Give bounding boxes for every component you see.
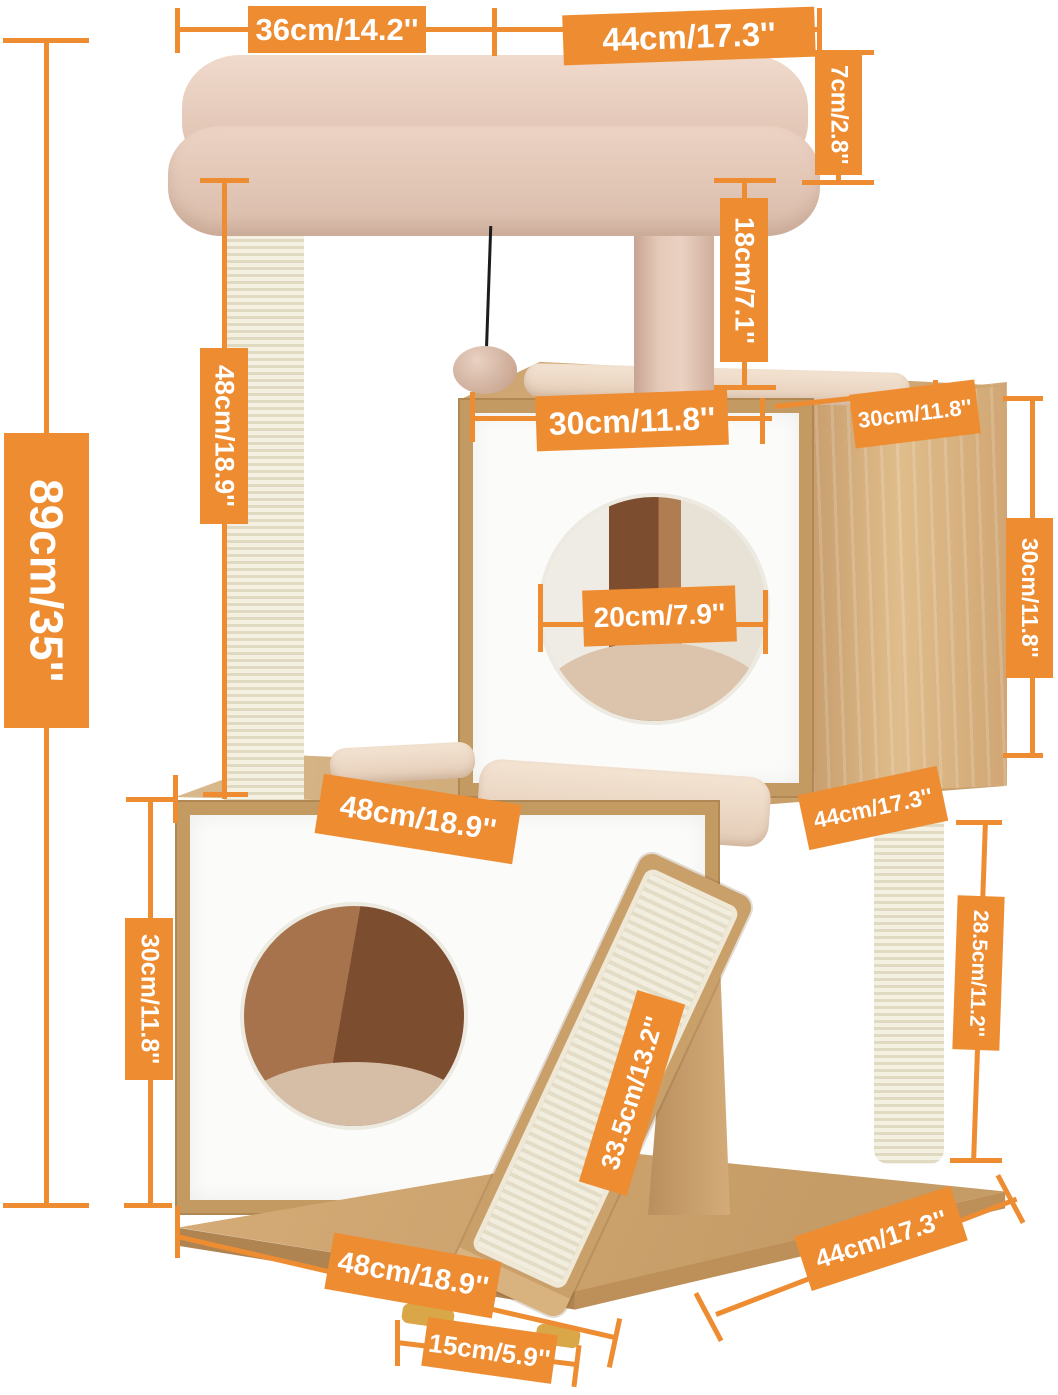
upper-condo-cushion	[538, 642, 770, 723]
dim-label-upper-condo-height: 30cm/11.8''	[1006, 518, 1053, 678]
upper-condo-side-panel	[812, 382, 1007, 794]
dim-label-perch-gap: 18cm/7.1''	[720, 198, 768, 362]
dim-label-top-right-width: 44cm/17.3''	[562, 7, 816, 66]
dim-tick	[203, 792, 248, 797]
dim-tick	[538, 584, 543, 652]
dim-tick	[470, 392, 475, 442]
dim-tick	[173, 775, 178, 823]
dim-tick	[175, 8, 180, 53]
dim-tick	[175, 1206, 180, 1258]
dim-tick	[395, 1320, 400, 1366]
rear-scratching-post	[874, 792, 944, 1164]
dim-tick	[763, 590, 768, 654]
dim-tick	[124, 1203, 172, 1208]
dim-tick	[3, 1203, 89, 1208]
dim-tick	[607, 1318, 622, 1368]
dim-tick	[817, 8, 822, 56]
dim-tick	[714, 178, 776, 183]
lower-condo-hole	[240, 902, 468, 1130]
lower-condo-cushion	[240, 1062, 468, 1128]
dim-tick	[3, 38, 89, 43]
toy-ball	[453, 346, 517, 394]
dim-tick	[200, 178, 249, 183]
dim-tick	[956, 820, 1002, 825]
dim-label-top-left-width: 36cm/14.2''	[248, 6, 426, 53]
dim-tick	[694, 1292, 724, 1342]
dim-tick	[126, 797, 176, 802]
dim-label-perch-thickness: 7cm/2.8''	[815, 55, 862, 175]
dim-label-lower-condo-height: 30cm/11.8''	[125, 918, 173, 1080]
dim-tick	[571, 1345, 581, 1387]
dim-label-upper-condo-width: 30cm/11.8''	[535, 390, 729, 452]
dim-tick	[950, 1158, 1002, 1163]
dim-tick	[760, 398, 765, 444]
dim-label-hole-diameter: 20cm/7.9''	[582, 585, 737, 646]
dim-tick	[1003, 753, 1043, 758]
dim-label-rear-post-height: 28.5cm/11.2''	[952, 895, 1004, 1051]
dim-label-left-post-height: 48cm/18.9''	[200, 348, 248, 524]
dim-label-total-height: 89cm/35''	[4, 433, 89, 728]
dim-tick	[1003, 396, 1043, 401]
dim-tick	[492, 8, 497, 56]
dim-tick	[802, 180, 874, 185]
cat-tree-dimension-diagram: 36cm/14.2'' 44cm/17.3'' 7cm/2.8'' 18cm/7…	[0, 0, 1058, 1395]
toy-string	[485, 226, 493, 356]
